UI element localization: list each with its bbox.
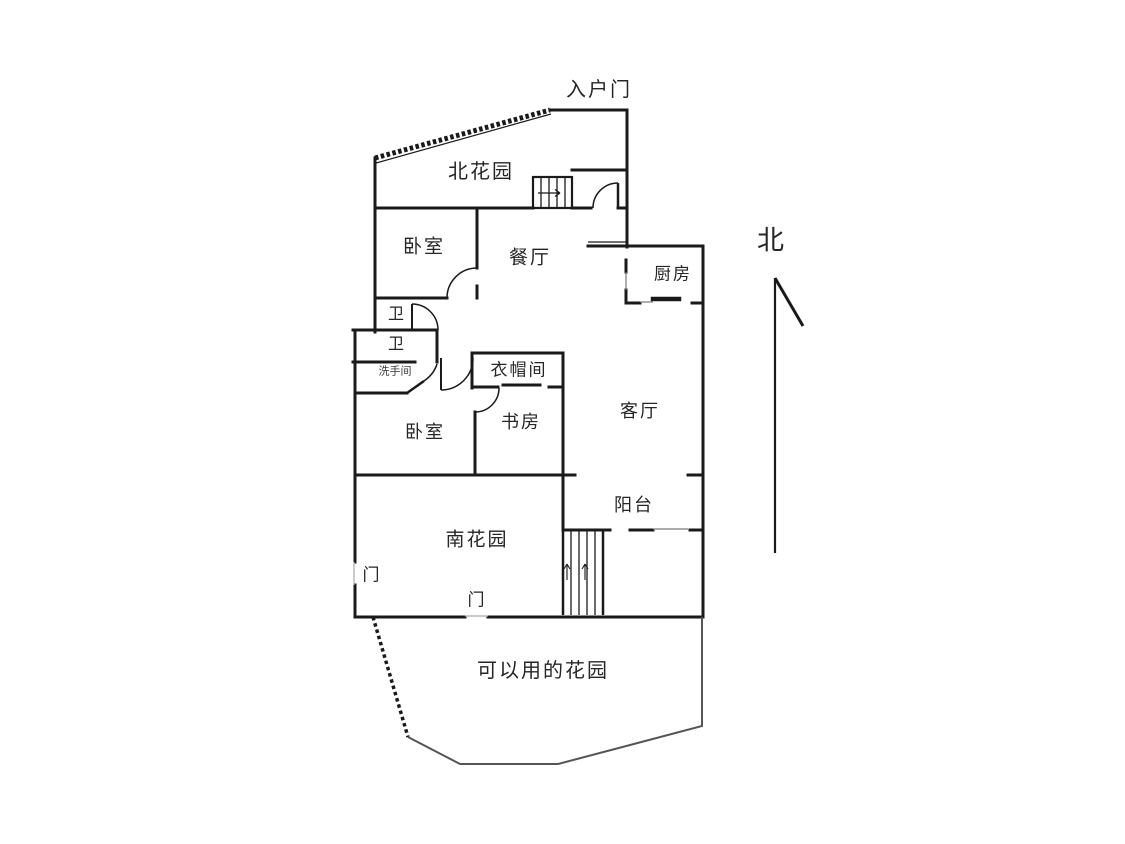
stairs-lower — [563, 530, 603, 615]
label-bedroom-south: 卧室 — [405, 423, 445, 441]
floorplan: 入户门 北花园 卧室 餐厅 厨房 卫 卫 洗手间 衣帽间 书房 卧室 客厅 阳台… — [0, 0, 1125, 844]
label-bath-upper: 卫 — [388, 307, 404, 323]
label-bedroom-north: 卧室 — [403, 238, 445, 257]
label-washroom: 洗手间 — [379, 367, 412, 378]
label-balcony: 阳台 — [614, 496, 654, 514]
label-south-garden: 南花园 — [445, 531, 508, 550]
label-entrance-door: 入户门 — [566, 80, 632, 100]
label-living-room: 客厅 — [620, 402, 660, 420]
hatched-boundary-north — [375, 110, 551, 163]
label-gate-south: 门 — [468, 592, 487, 609]
label-dining-room: 餐厅 — [509, 249, 551, 268]
label-kitchen: 厨房 — [654, 266, 692, 283]
north-arrow — [775, 278, 803, 553]
label-study: 书房 — [501, 413, 541, 431]
garden-outline — [373, 617, 702, 764]
label-compass-north: 北 — [757, 228, 785, 255]
label-north-garden: 北花园 — [448, 162, 514, 182]
stairs-upper — [533, 177, 572, 208]
label-cloakroom: 衣帽间 — [491, 362, 548, 379]
floorplan-drawing — [0, 0, 1125, 844]
label-gate-west: 门 — [363, 567, 382, 584]
label-usable-garden: 可以用的花园 — [477, 661, 609, 681]
label-bath-lower: 卫 — [388, 337, 404, 353]
